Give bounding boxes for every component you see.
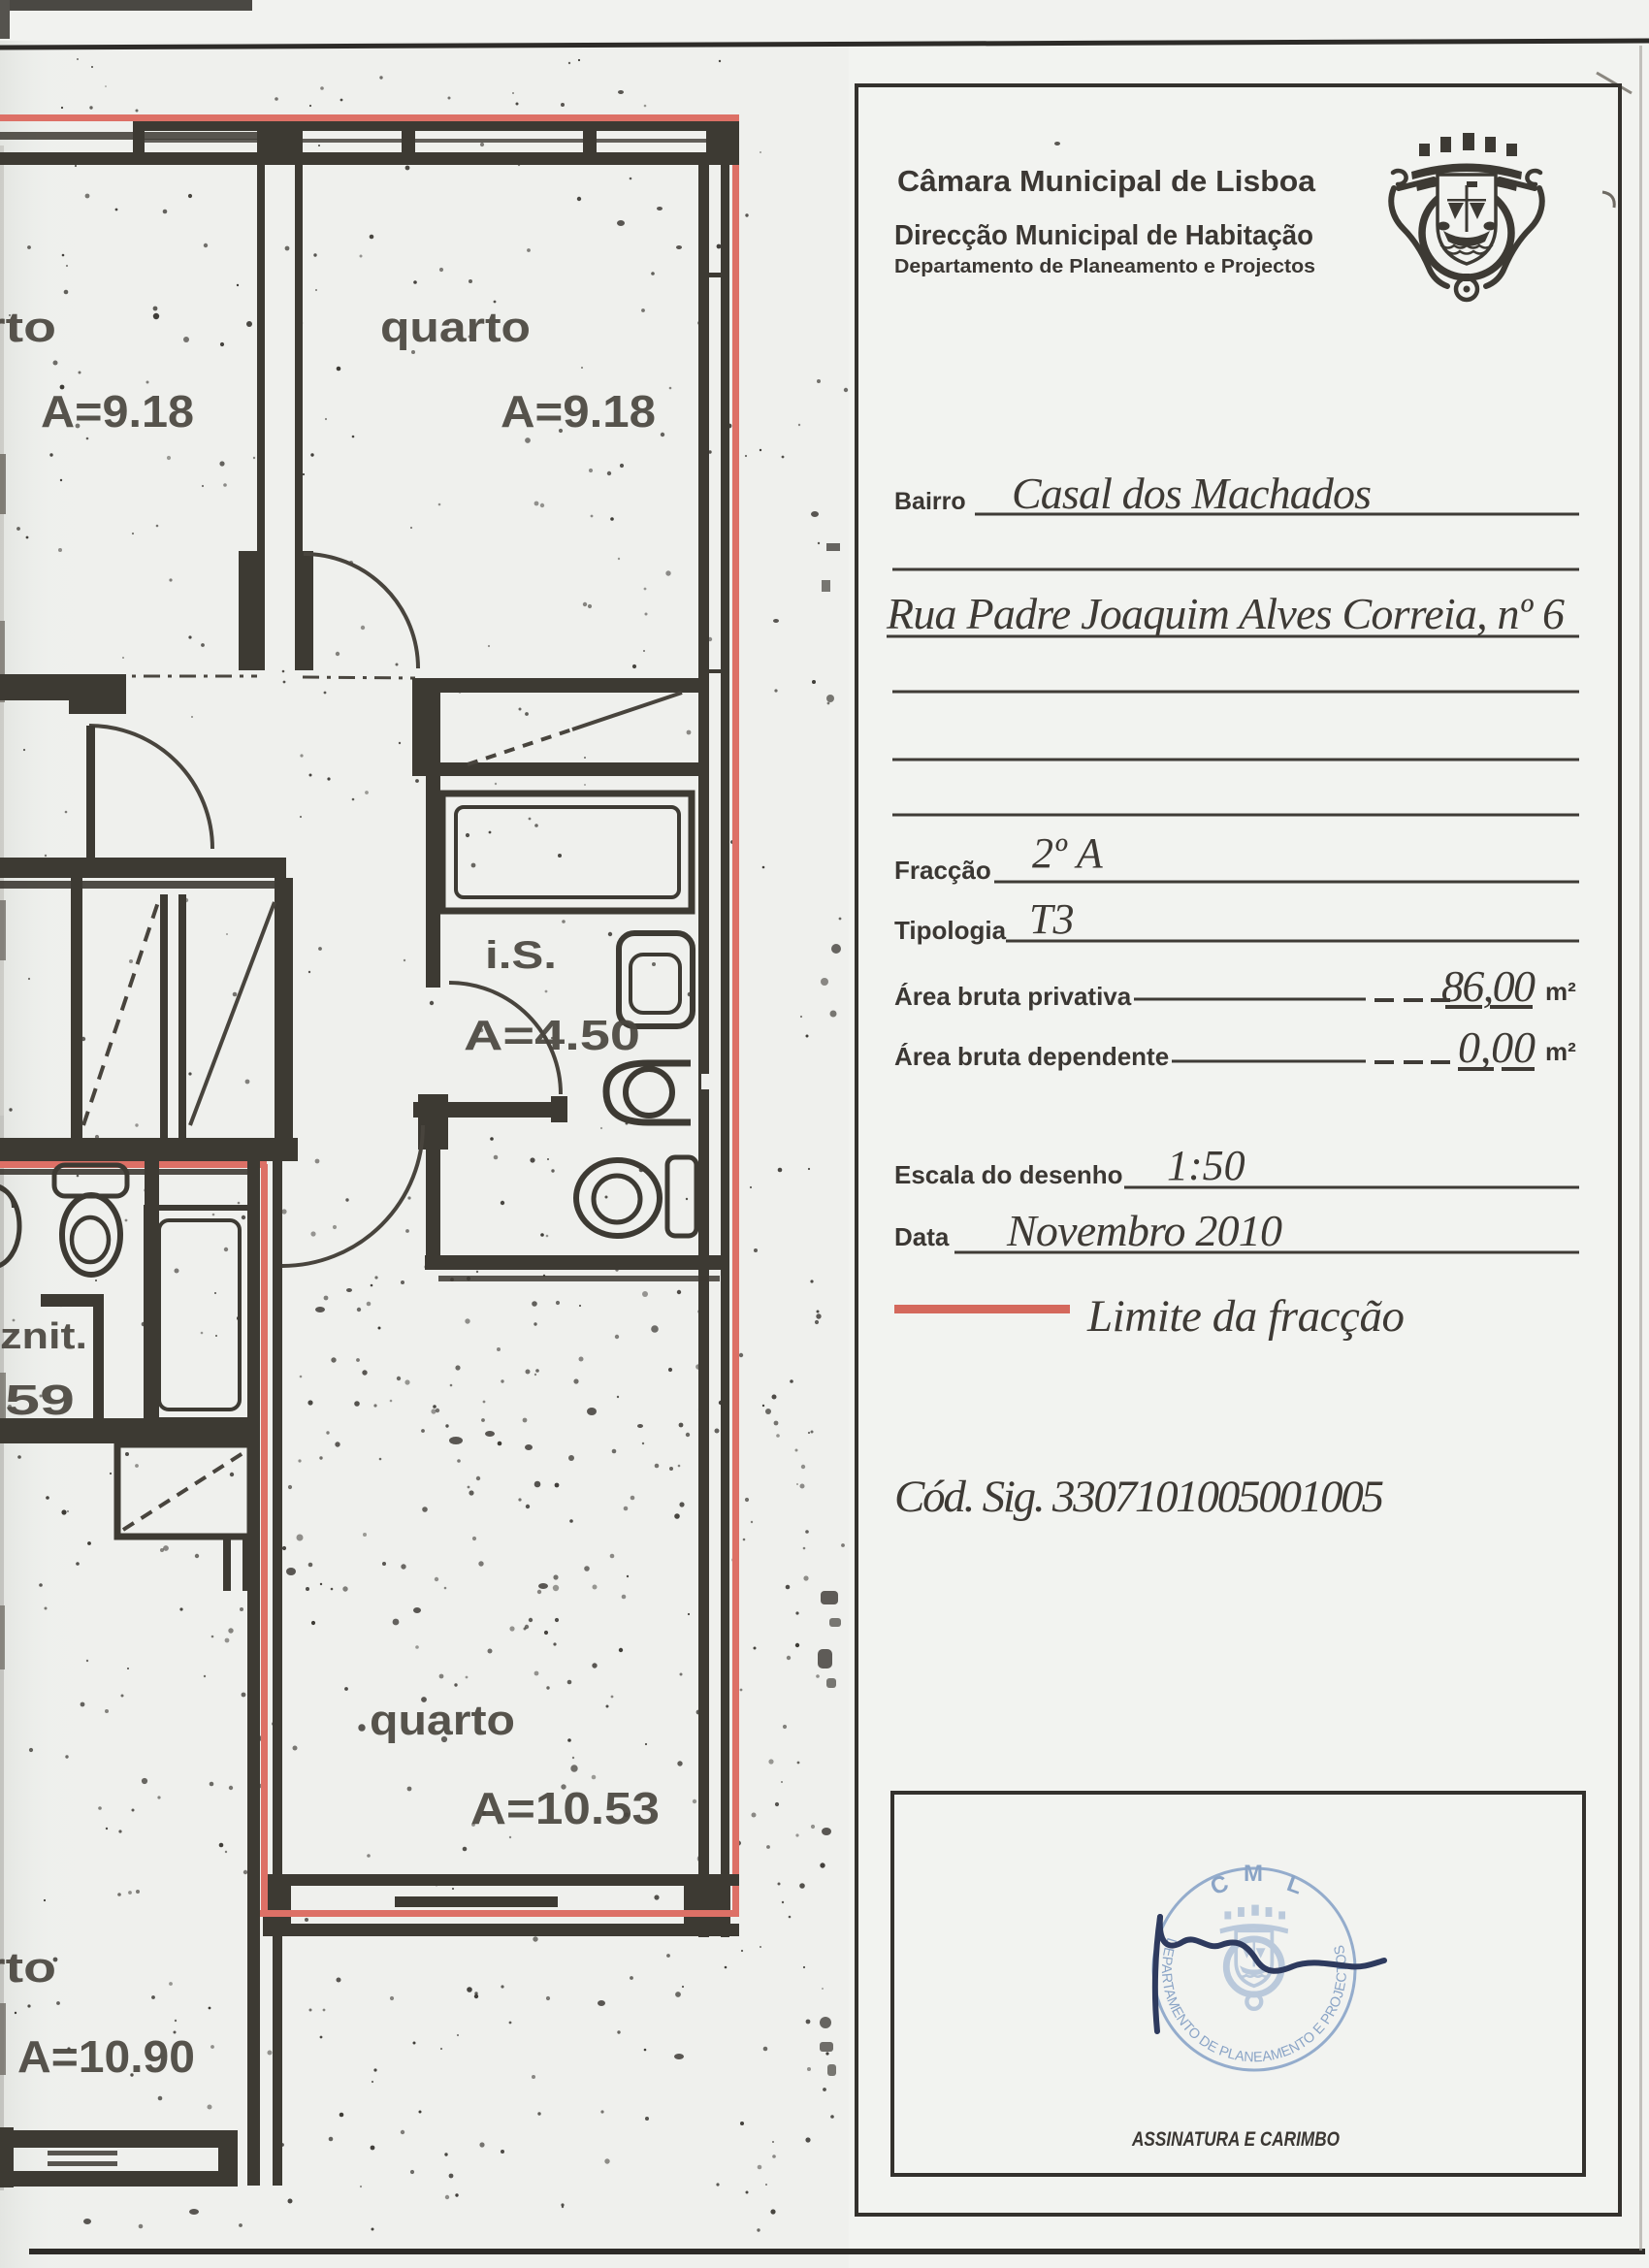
svg-text:rto: rto (0, 1944, 56, 1992)
svg-text:Cód. Sig. 3307101005001005: Cód. Sig. 3307101005001005 (894, 1472, 1384, 1522)
svg-text:2º A: 2º A (1032, 829, 1104, 877)
svg-text:A=9.18: A=9.18 (501, 386, 656, 437)
svg-text:Data: Data (894, 1222, 950, 1251)
svg-text:Departamento de Planeamento e: Departamento de Planeamento e Projectos (894, 256, 1315, 277)
svg-text:A=9.18: A=9.18 (41, 386, 194, 437)
svg-text:znit.: znit. (0, 1316, 87, 1357)
svg-text:quarto: quarto (380, 304, 531, 351)
svg-text:ASSINATURA E CARIMBO: ASSINATURA E CARIMBO (1131, 2128, 1340, 2151)
svg-text:i.S.: i.S. (485, 934, 557, 977)
svg-text:1:50: 1:50 (1167, 1142, 1245, 1189)
svg-text:m²: m² (1545, 1037, 1576, 1066)
svg-text:Casal dos Machados: Casal dos Machados (1012, 469, 1372, 518)
svg-text:86,00: 86,00 (1441, 961, 1536, 1011)
svg-text:Área bruta privativa: Área bruta privativa (894, 982, 1132, 1011)
svg-text:A=10.90: A=10.90 (17, 2031, 195, 2082)
svg-text:Tipologia: Tipologia (894, 916, 1007, 945)
svg-text:m²: m² (1545, 977, 1576, 1006)
svg-text:M: M (1244, 1861, 1263, 1887)
svg-text:Rua Padre Joaquim Alves Correi: Rua Padre Joaquim Alves Correia, nº 6 (886, 589, 1565, 638)
svg-text:Câmara Municipal de Lisboa: Câmara Municipal de Lisboa (897, 164, 1316, 198)
svg-text:A=10.53: A=10.53 (470, 1783, 660, 1833)
svg-text:quarto: quarto (370, 1697, 515, 1744)
svg-text:59: 59 (5, 1377, 75, 1424)
svg-text:Fracção: Fracção (894, 856, 991, 885)
svg-text:A=4.50: A=4.50 (464, 1012, 640, 1059)
svg-text:Área bruta dependente: Área bruta dependente (894, 1042, 1169, 1071)
svg-text:Escala do desenho: Escala do desenho (894, 1160, 1123, 1189)
svg-text:Bairro: Bairro (894, 488, 966, 515)
svg-text:0,00: 0,00 (1458, 1022, 1536, 1072)
svg-text:T3: T3 (1029, 895, 1074, 943)
svg-text:rto: rto (0, 304, 56, 351)
svg-text:Novembro 2010: Novembro 2010 (1006, 1206, 1282, 1255)
svg-text:Direcção Municipal de Habitaçã: Direcção Municipal de Habitação (894, 220, 1313, 251)
svg-text:Limite da fracção: Limite da fracção (1086, 1291, 1405, 1342)
